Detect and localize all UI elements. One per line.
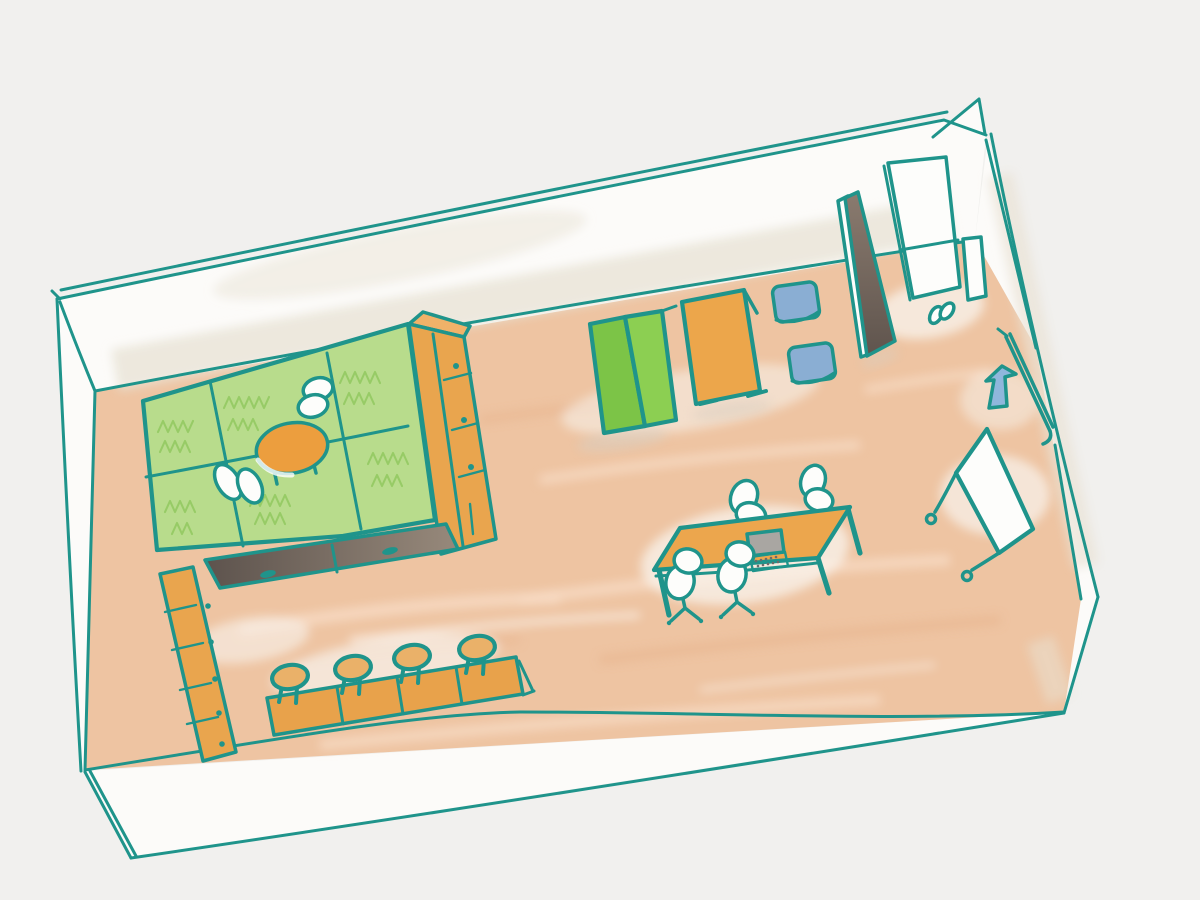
blue-cushion <box>788 342 837 384</box>
caster-wheel <box>751 612 755 616</box>
knob <box>219 741 225 747</box>
blue-cushion <box>772 281 821 323</box>
sketch-canvas <box>0 0 1200 900</box>
knob <box>468 464 474 470</box>
knob <box>205 603 211 609</box>
caster-wheel <box>667 621 671 625</box>
knob <box>453 363 459 369</box>
room-sketch <box>0 0 1200 900</box>
knob <box>216 710 222 716</box>
knob <box>461 417 467 423</box>
knob <box>212 676 218 682</box>
knob <box>208 639 214 645</box>
caster-wheel <box>699 619 703 623</box>
board-panel <box>682 290 760 404</box>
wall-whiteboard-side <box>963 237 986 300</box>
caster-wheel <box>719 615 723 619</box>
